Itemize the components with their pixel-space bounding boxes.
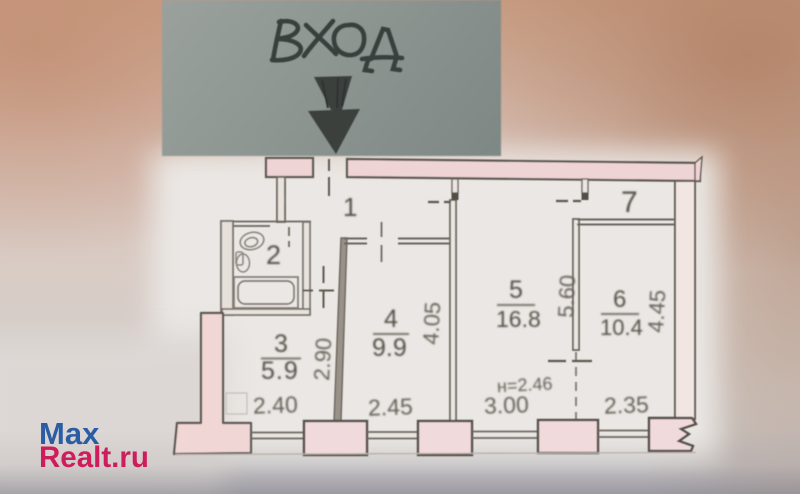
svg-text:5: 5 bbox=[509, 276, 523, 304]
svg-text:5.9: 5.9 bbox=[261, 357, 299, 385]
svg-text:2.90: 2.90 bbox=[309, 337, 336, 381]
svg-text:3: 3 bbox=[274, 330, 288, 358]
svg-text:5.60: 5.60 bbox=[553, 274, 580, 318]
svg-text:10.4: 10.4 bbox=[600, 315, 643, 340]
svg-text:1: 1 bbox=[343, 192, 357, 222]
svg-text:н=2.46: н=2.46 bbox=[496, 373, 552, 396]
svg-text:2: 2 bbox=[266, 240, 281, 270]
svg-text:7: 7 bbox=[621, 186, 638, 219]
svg-text:16.8: 16.8 bbox=[496, 306, 541, 332]
svg-text:4.05: 4.05 bbox=[418, 301, 445, 345]
svg-text:2.40: 2.40 bbox=[253, 391, 299, 419]
svg-text:2.35: 2.35 bbox=[604, 391, 650, 419]
svg-text:2.45: 2.45 bbox=[368, 393, 414, 421]
svg-text:Realt.ru: Realt.ru bbox=[39, 441, 149, 474]
svg-text:9.9: 9.9 bbox=[372, 334, 407, 362]
svg-text:6: 6 bbox=[613, 286, 626, 313]
svg-text:4: 4 bbox=[384, 305, 398, 333]
svg-text:4.45: 4.45 bbox=[643, 289, 670, 333]
